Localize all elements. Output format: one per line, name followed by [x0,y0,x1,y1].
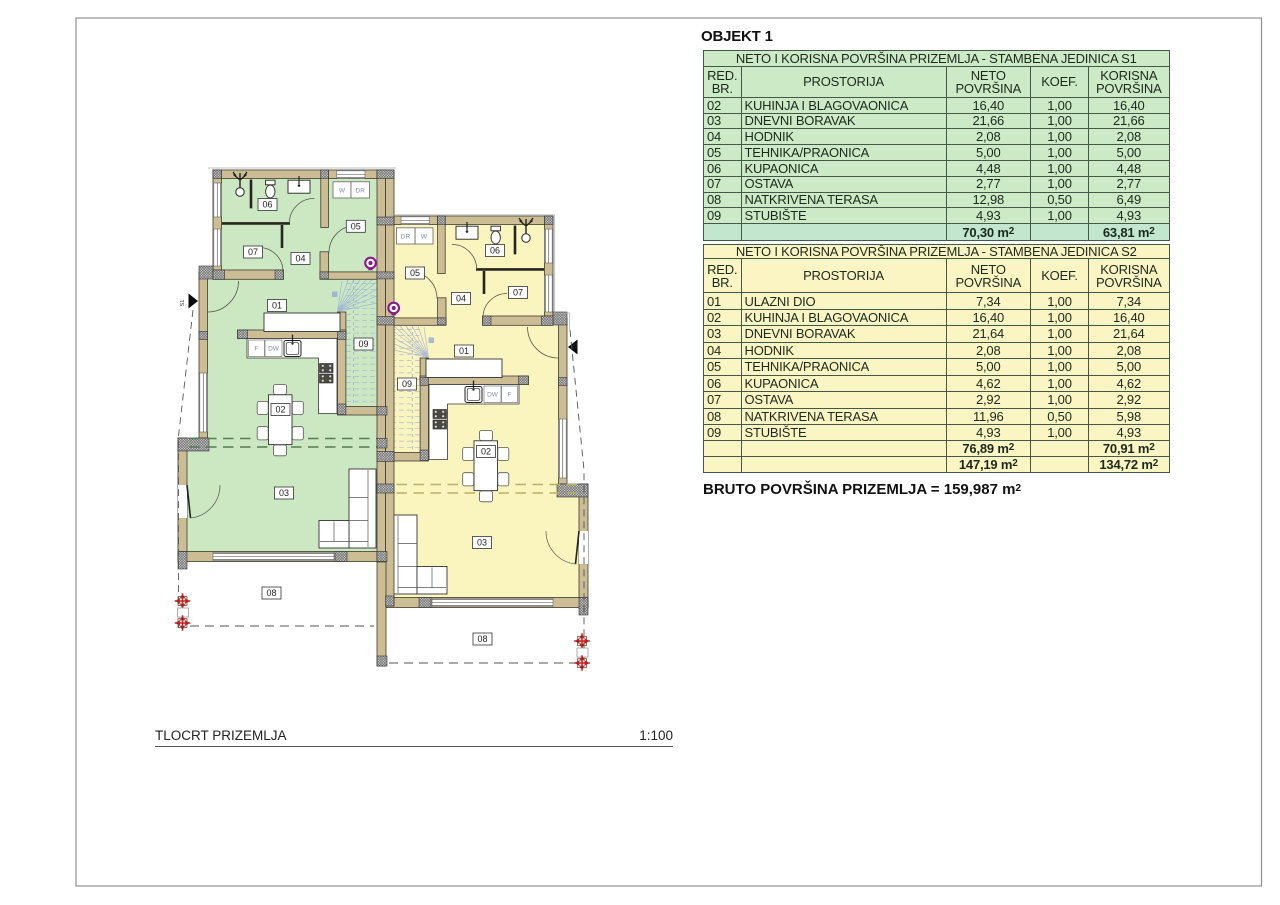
svg-text:03: 03 [279,488,289,498]
svg-text:06: 06 [262,200,272,210]
svg-text:07: 07 [248,247,258,257]
svg-text:06: 06 [490,246,500,256]
svg-text:04: 04 [456,294,466,304]
svg-text:08: 08 [266,588,276,598]
svg-text:09: 09 [358,339,368,349]
svg-text:S1: S1 [571,343,577,350]
svg-text:DR: DR [356,188,366,195]
svg-text:07: 07 [513,288,523,298]
svg-text:02: 02 [481,447,491,457]
svg-text:04: 04 [295,254,305,264]
svg-text:S1: S1 [180,300,186,307]
svg-text:05: 05 [410,268,420,278]
svg-text:W: W [421,234,428,241]
svg-text:05: 05 [351,222,361,232]
svg-text:W: W [339,188,346,195]
svg-text:01: 01 [272,301,282,311]
svg-text:01: 01 [459,346,469,356]
svg-text:08: 08 [477,634,487,644]
svg-text:DW: DW [487,392,499,399]
svg-text:02: 02 [275,405,285,415]
svg-text:09: 09 [402,379,412,389]
svg-text:03: 03 [477,538,487,548]
svg-text:F: F [508,392,512,399]
svg-text:DR: DR [401,234,411,241]
svg-text:DW: DW [268,346,280,353]
svg-text:F: F [255,346,259,353]
